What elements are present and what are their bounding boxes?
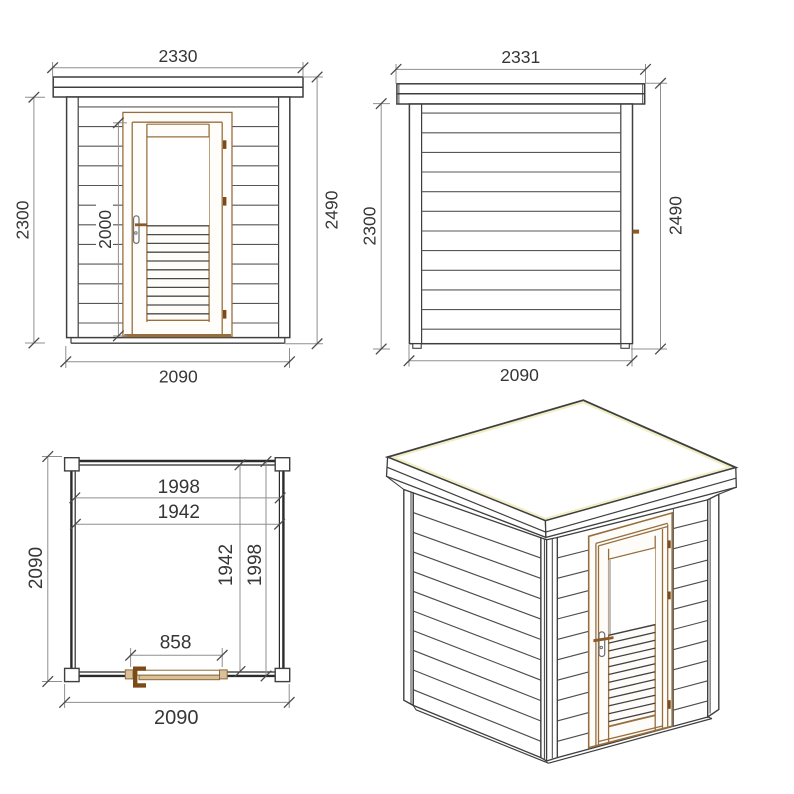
svg-text:2490: 2490 [665,196,685,235]
svg-text:2090: 2090 [500,365,539,385]
svg-text:2330: 2330 [159,46,198,66]
svg-text:2090: 2090 [154,707,199,729]
svg-text:1942: 1942 [216,544,237,586]
svg-text:1998: 1998 [158,477,200,498]
svg-text:858: 858 [160,632,192,653]
svg-text:2300: 2300 [13,200,33,239]
svg-text:2331: 2331 [501,47,540,67]
svg-text:2090: 2090 [159,367,198,387]
svg-text:2000: 2000 [95,210,115,249]
svg-text:2090: 2090 [26,547,47,589]
svg-text:2490: 2490 [321,190,341,229]
svg-text:1942: 1942 [158,502,200,523]
svg-text:1998: 1998 [245,544,266,586]
svg-text:2300: 2300 [359,206,379,245]
